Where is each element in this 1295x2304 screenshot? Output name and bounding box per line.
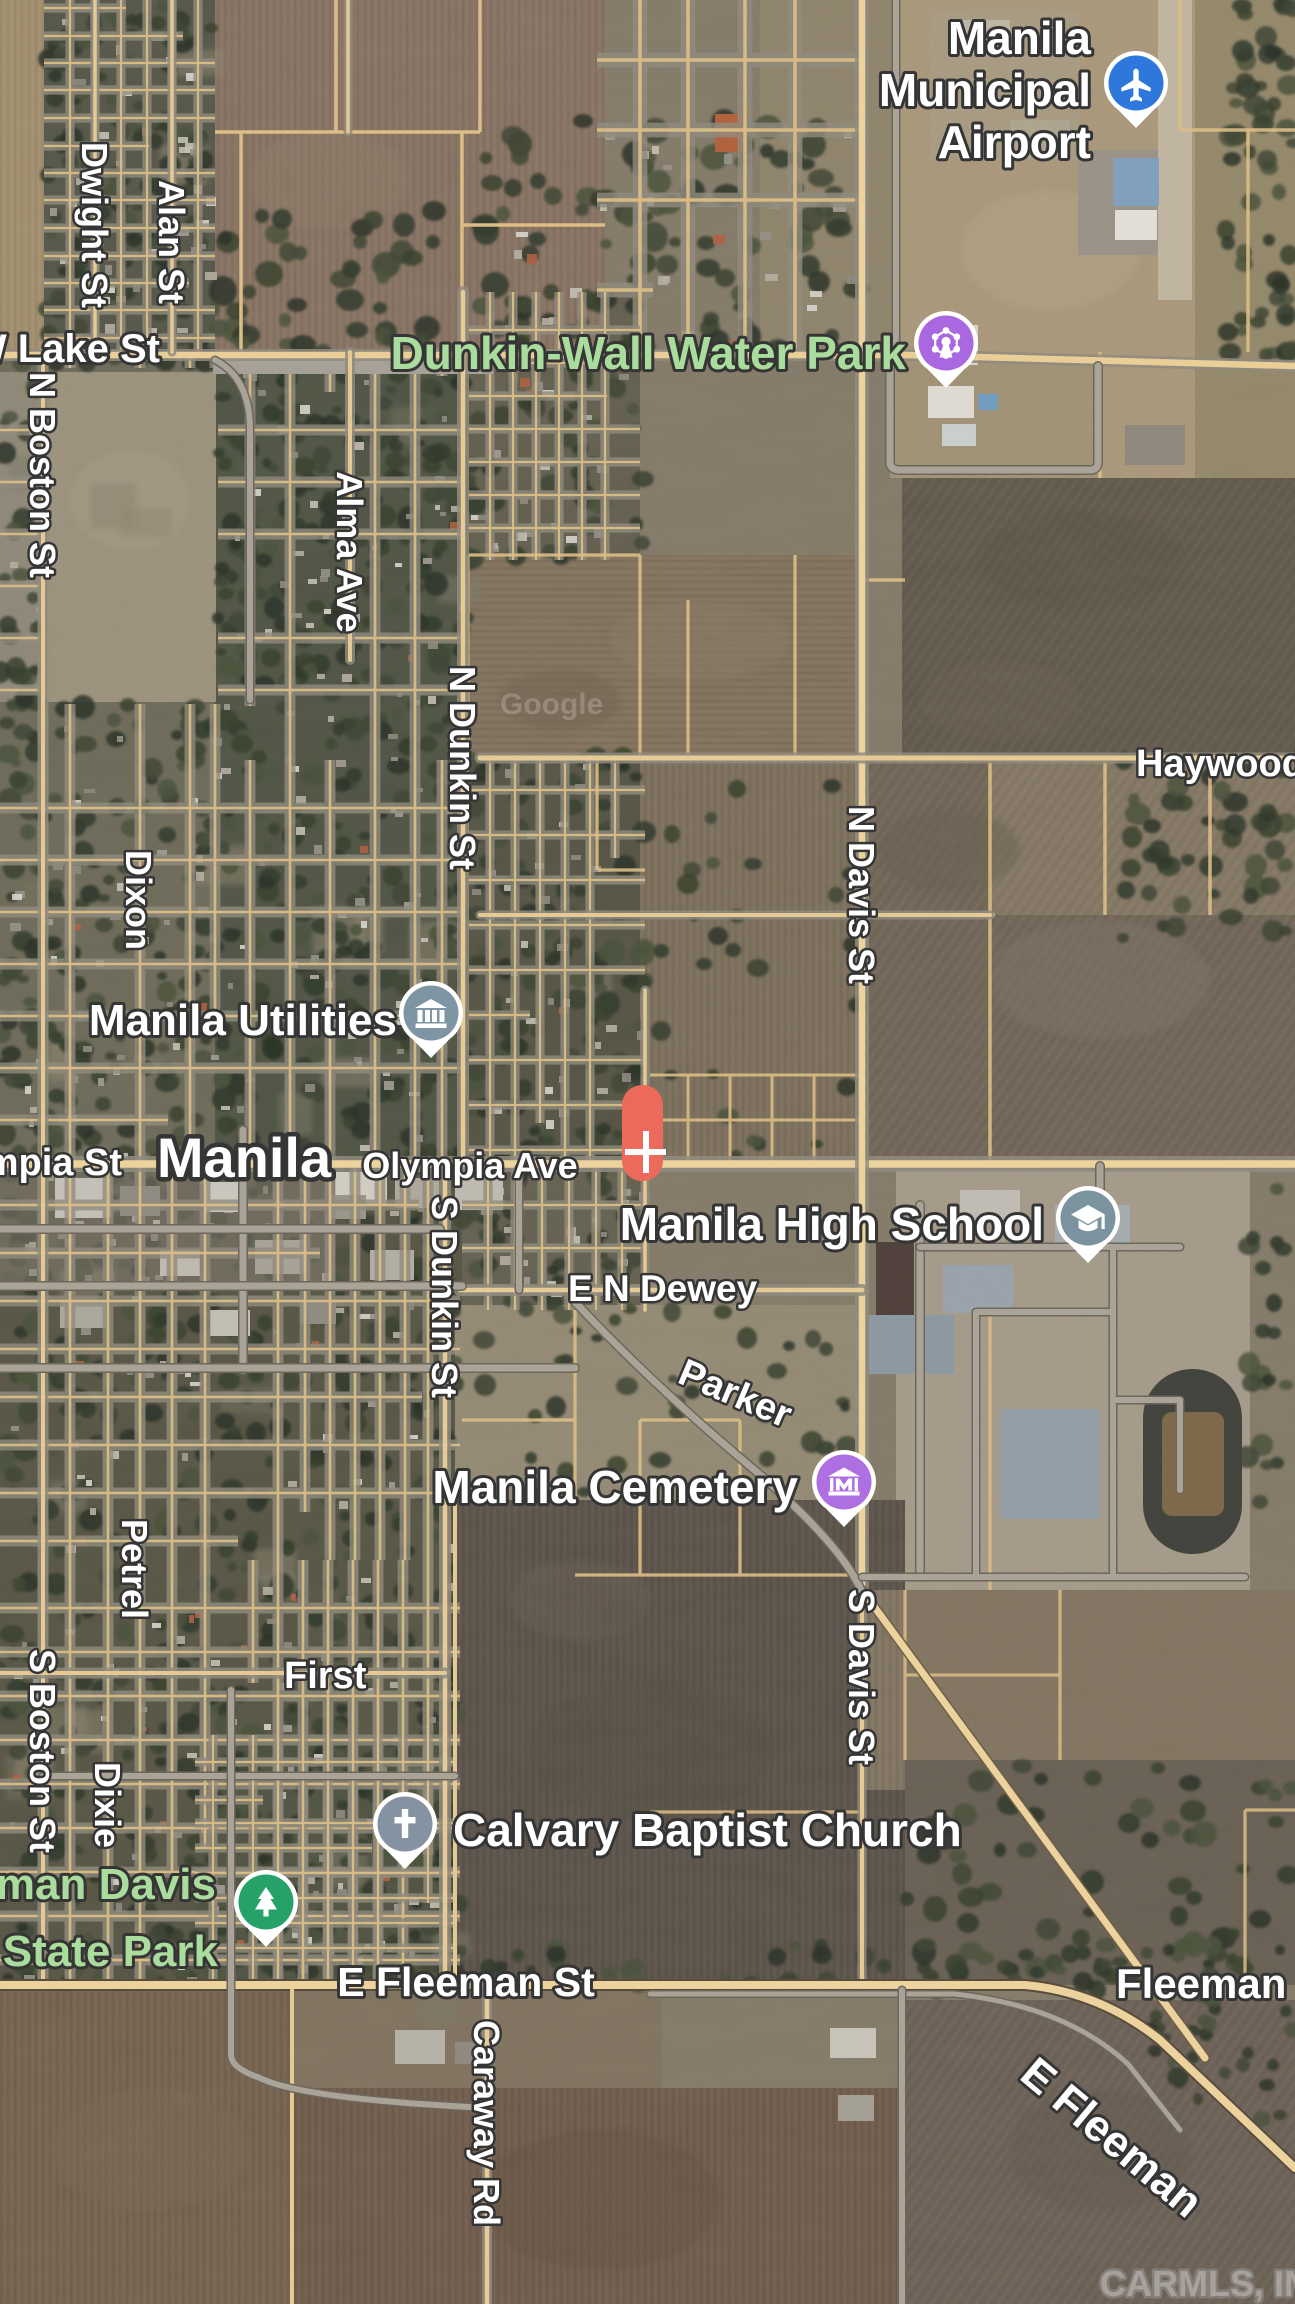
svg-text:S Boston St: S Boston St <box>22 1649 63 1853</box>
svg-text:Manila: Manila <box>157 1126 332 1189</box>
svg-text:Dwight St: Dwight St <box>74 142 115 308</box>
svg-text:Olympia St: Olympia St <box>0 1142 122 1184</box>
svg-text:S Dunkin St: S Dunkin St <box>424 1196 465 1398</box>
svg-text:First: First <box>284 1655 367 1697</box>
svg-text:Olympia Ave: Olympia Ave <box>362 1145 577 1186</box>
svg-text:Airport: Airport <box>938 116 1091 168</box>
svg-text:Haywood St: Haywood St <box>1136 743 1295 785</box>
svg-text:Municipal: Municipal <box>879 64 1091 116</box>
svg-text:E Fleeman St: E Fleeman St <box>337 1959 595 2005</box>
svg-text:Manila High School: Manila High School <box>620 1198 1044 1250</box>
svg-text:Alan St: Alan St <box>151 180 192 304</box>
svg-text:Petrel: Petrel <box>114 1519 155 1619</box>
svg-text:CARMLS, INC: CARMLS, INC <box>1100 2263 1295 2304</box>
svg-text:Caraway Rd: Caraway Rd <box>466 2020 507 2226</box>
svg-text:S Davis St: S Davis St <box>841 1589 882 1765</box>
svg-text:Manila Cemetery: Manila Cemetery <box>432 1461 798 1513</box>
svg-text:N Boston St: N Boston St <box>22 372 63 578</box>
svg-text:E N Dewey: E N Dewey <box>568 1268 758 1309</box>
svg-text:Dunkin-Wall Water Park: Dunkin-Wall Water Park <box>391 327 907 379</box>
svg-text:Fleeman St: Fleeman St <box>1116 1960 1295 2007</box>
svg-text:Herman Davis: Herman Davis <box>0 1860 216 1909</box>
svg-text:N Dunkin St: N Dunkin St <box>442 666 483 870</box>
svg-text:Dixon: Dixon <box>118 850 159 950</box>
svg-text:Google: Google <box>500 688 603 721</box>
svg-text:Dixie: Dixie <box>87 1762 128 1848</box>
svg-text:State Park: State Park <box>3 1927 219 1976</box>
svg-text:Alma Ave: Alma Ave <box>329 471 370 632</box>
svg-text:W Lake St: W Lake St <box>0 327 160 371</box>
svg-text:Manila: Manila <box>948 12 1092 64</box>
svg-text:N Davis St: N Davis St <box>841 806 882 984</box>
svg-text:Manila Utilities: Manila Utilities <box>89 996 397 1045</box>
svg-text:Calvary Baptist Church: Calvary Baptist Church <box>453 1804 962 1856</box>
